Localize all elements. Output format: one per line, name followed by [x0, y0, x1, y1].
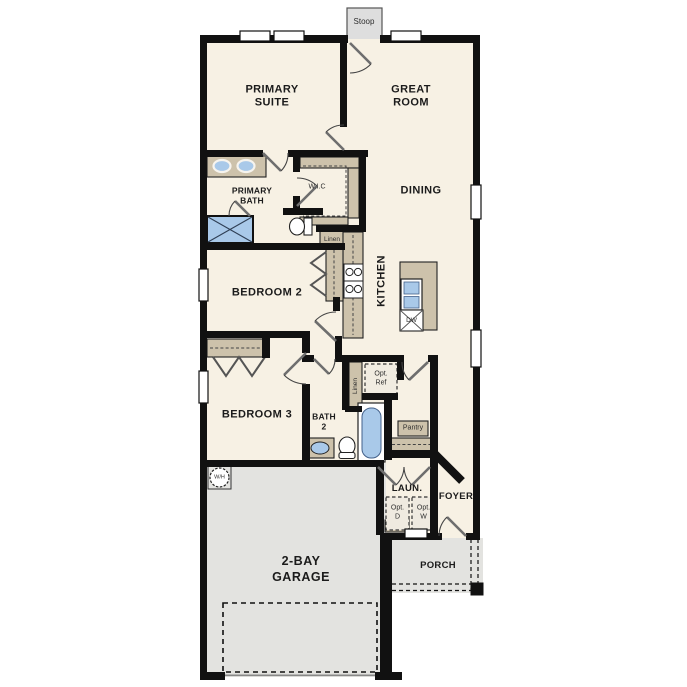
primary-bath-label: PRIMARY BATH	[232, 186, 272, 207]
bedroom3-label: BEDROOM 3	[222, 408, 292, 421]
laundry-label: LAUN.	[392, 483, 423, 495]
window	[405, 529, 427, 538]
opt-ref-label: Opt. Ref	[374, 370, 387, 387]
wall	[392, 450, 438, 458]
wall	[200, 331, 310, 338]
foyer-label: FOYER	[439, 491, 473, 503]
wall	[333, 297, 340, 311]
floor-plan: Stoop PRIMARY SUITE GREAT ROOM DINING PR…	[0, 0, 687, 687]
window	[391, 31, 421, 41]
linen-primary-label: Linen	[324, 236, 340, 244]
window	[471, 185, 481, 219]
tub	[362, 408, 381, 458]
bath2-label: BATH 2	[312, 412, 336, 433]
toilet-primary-tank	[304, 218, 312, 235]
dining-label: DINING	[401, 184, 442, 197]
wall	[293, 196, 300, 208]
wall	[200, 243, 345, 250]
wall	[302, 331, 310, 353]
wall	[362, 393, 398, 400]
wall	[349, 355, 367, 362]
toilet-primary-bowl	[290, 218, 305, 235]
wic-shelf-right	[348, 168, 359, 218]
primary-suite-label: PRIMARY SUITE	[245, 84, 298, 111]
kitchen-label: KITCHEN	[375, 255, 388, 307]
bedroom2-label: BEDROOM 2	[232, 286, 302, 299]
wall	[262, 331, 270, 358]
wall	[466, 533, 480, 540]
vanity-sink-right	[238, 160, 255, 172]
wall	[380, 533, 392, 680]
island-sink-basin2	[404, 297, 419, 309]
island-sink-basin1	[404, 282, 419, 294]
water-heater-label: W/H	[214, 474, 225, 481]
wall	[340, 43, 347, 127]
window	[199, 269, 208, 301]
great-room-label: GREAT ROOM	[391, 84, 431, 111]
wall	[200, 35, 207, 680]
wall	[288, 150, 368, 157]
pantry-label: Pantry	[403, 424, 423, 433]
wall	[473, 35, 480, 540]
porch-post	[471, 583, 483, 595]
porch-label: PORCH	[420, 560, 456, 572]
window	[240, 31, 270, 41]
dishwasher-label: DW	[406, 317, 417, 325]
wall	[293, 157, 300, 172]
garage-door-threshold	[225, 675, 375, 677]
wall	[430, 362, 438, 533]
linen-bath2-label: Linen	[352, 378, 360, 394]
stoop-label: Stoop	[354, 17, 375, 27]
opt-washer-label: Opt. W	[417, 504, 430, 521]
wall	[342, 355, 349, 410]
wall	[384, 398, 392, 460]
floor-plan-drawing	[0, 0, 687, 687]
wall	[316, 225, 359, 232]
toilet-bath2-base	[339, 453, 355, 459]
wall	[302, 384, 310, 467]
vanity-sink-left	[214, 160, 231, 172]
wall	[428, 355, 438, 362]
wall	[283, 208, 323, 215]
wall	[359, 150, 366, 232]
bath2-sink	[311, 442, 329, 454]
window	[199, 371, 208, 403]
wall	[345, 406, 362, 412]
pantry-shelf-lower	[390, 438, 433, 451]
wall	[200, 672, 225, 680]
garage-label: 2-BAY GARAGE	[272, 553, 330, 586]
wic-label: W.I.C	[308, 184, 325, 193]
window	[274, 31, 304, 41]
window	[471, 330, 481, 367]
opt-dryer-label: Opt. D	[391, 504, 404, 521]
wall	[367, 355, 397, 362]
wall	[200, 460, 384, 467]
wall	[200, 150, 263, 157]
